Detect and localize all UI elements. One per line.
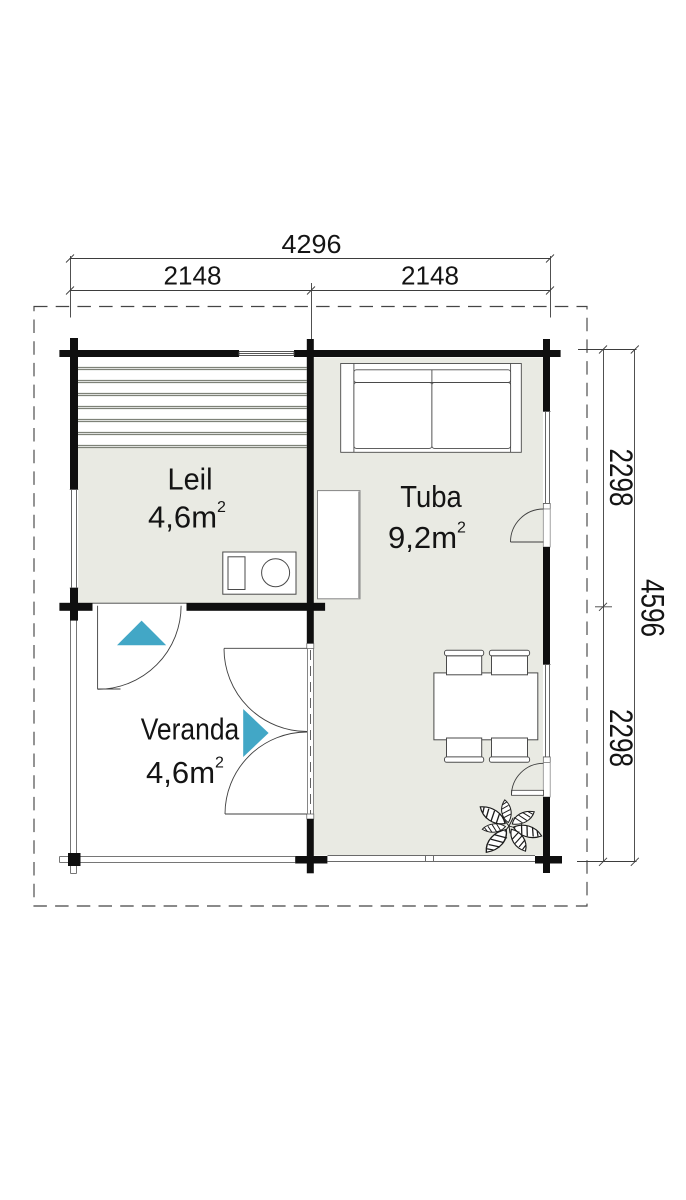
svg-text:4,6m2: 4,6m2 [146,754,224,790]
svg-text:2148: 2148 [164,260,222,290]
svg-text:2298: 2298 [603,709,639,767]
svg-text:4596: 4596 [634,579,670,637]
svg-text:Leil: Leil [168,462,213,497]
svg-text:2298: 2298 [603,449,639,507]
svg-text:9,2m2: 9,2m2 [388,519,466,555]
svg-text:2148: 2148 [401,260,459,290]
svg-text:Veranda: Veranda [141,712,240,747]
svg-text:4296: 4296 [282,229,342,259]
svg-text:4,6m2: 4,6m2 [148,499,226,535]
svg-text:Tuba: Tuba [400,479,462,514]
